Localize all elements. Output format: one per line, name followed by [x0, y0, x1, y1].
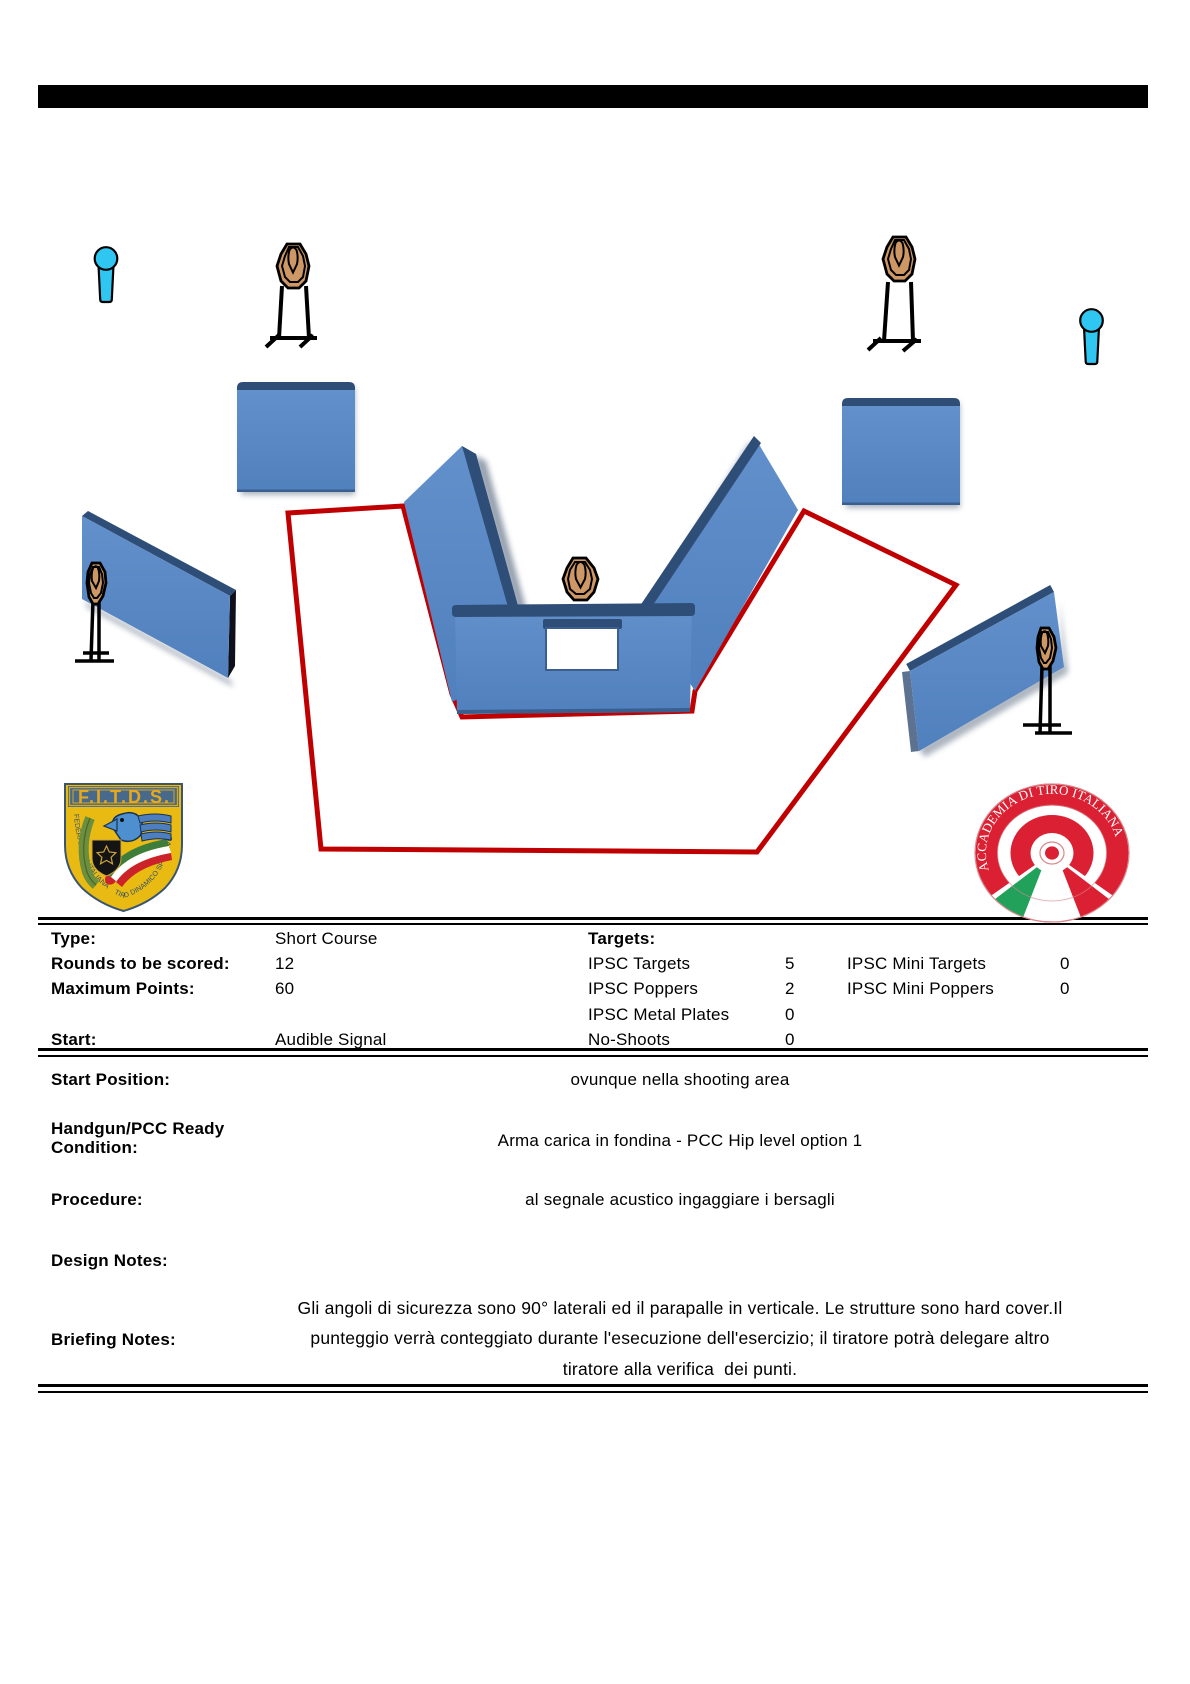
svg-text:F.I.T.D.S.: F.I.T.D.S. [78, 787, 171, 807]
